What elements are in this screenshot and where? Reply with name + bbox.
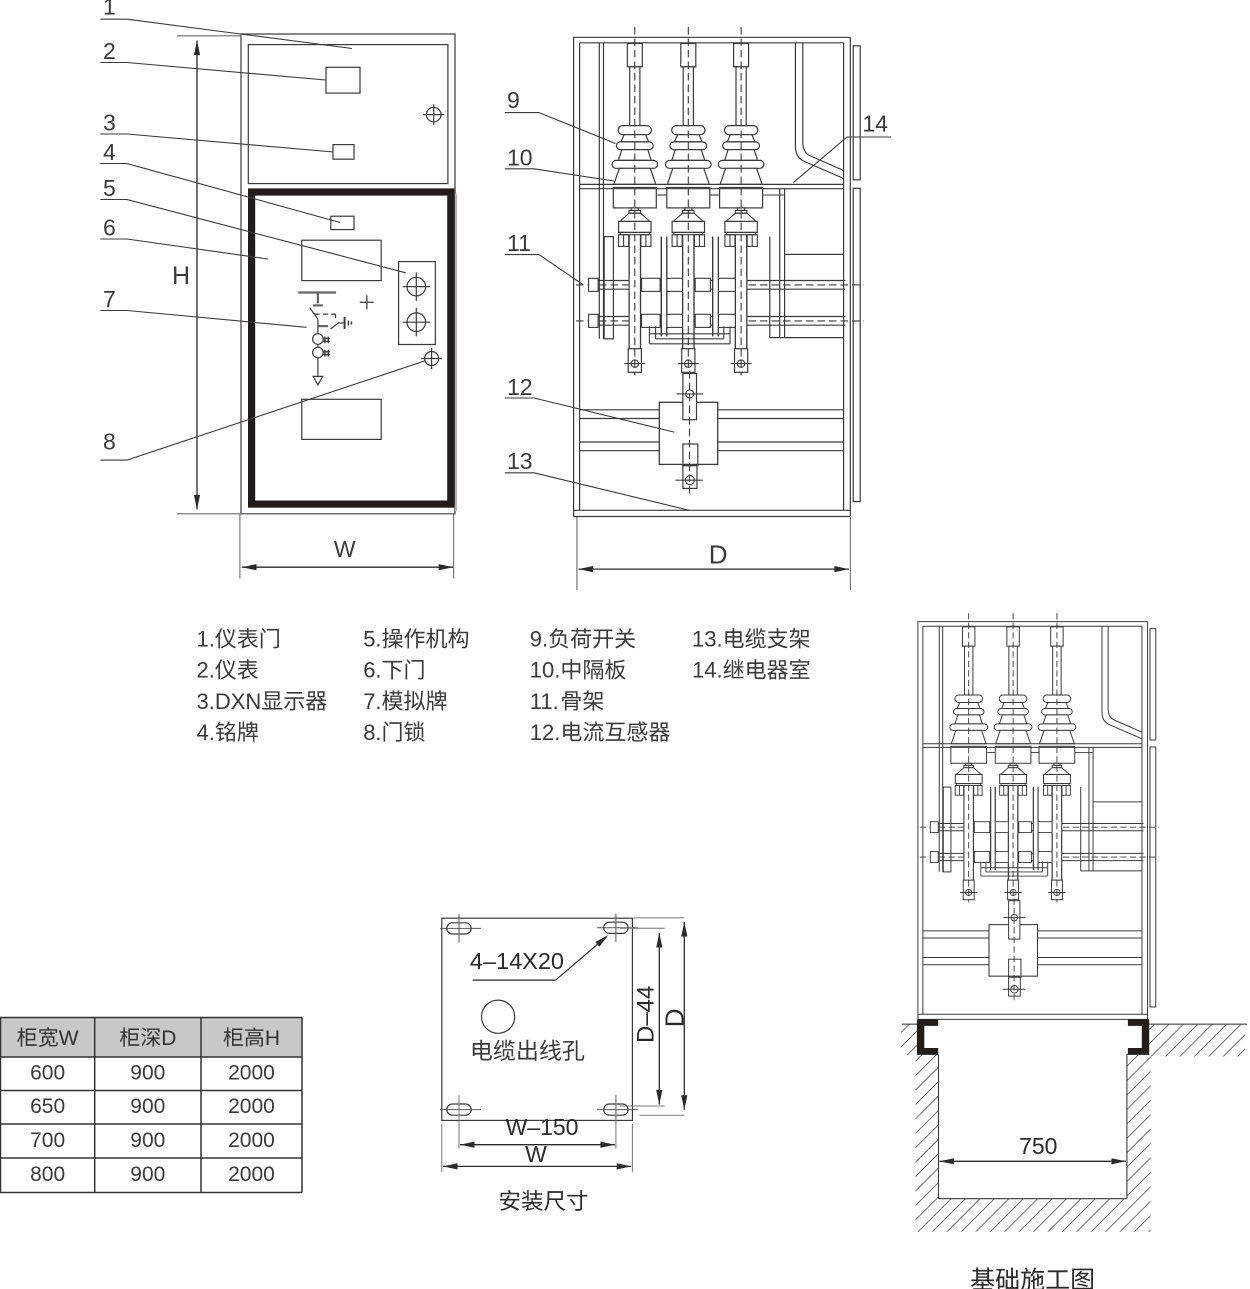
svg-text:600: 600 xyxy=(30,1061,65,1084)
svg-text:750: 750 xyxy=(1019,1133,1057,1159)
svg-text:12.: 12. xyxy=(530,720,561,745)
svg-text:7: 7 xyxy=(103,286,116,312)
svg-text:900: 900 xyxy=(130,1061,165,1084)
svg-text:650: 650 xyxy=(30,1095,65,1118)
svg-text:2000: 2000 xyxy=(228,1061,275,1084)
svg-text:W: W xyxy=(525,1141,547,1167)
svg-text:W: W xyxy=(334,536,356,562)
svg-text:6: 6 xyxy=(103,215,116,241)
svg-text:2000: 2000 xyxy=(228,1129,275,1152)
svg-text:1: 1 xyxy=(103,0,116,20)
svg-text:8: 8 xyxy=(103,429,116,455)
svg-text:900: 900 xyxy=(130,1129,165,1152)
svg-text:3: 3 xyxy=(103,110,116,136)
svg-text:4–14X20: 4–14X20 xyxy=(470,948,564,974)
svg-text:W–150: W–150 xyxy=(506,1114,579,1140)
svg-text:2000: 2000 xyxy=(228,1163,275,1186)
svg-text:800: 800 xyxy=(30,1163,65,1186)
svg-text:7.: 7. xyxy=(363,689,381,714)
svg-text:4.: 4. xyxy=(197,720,215,745)
svg-text:14: 14 xyxy=(862,111,888,137)
svg-text:5: 5 xyxy=(103,175,116,201)
svg-text:9.: 9. xyxy=(530,627,548,652)
svg-text:D: D xyxy=(161,1027,176,1050)
svg-text:6.: 6. xyxy=(363,658,381,683)
svg-text:14.: 14. xyxy=(692,658,723,683)
svg-text:W: W xyxy=(59,1027,79,1050)
svg-text:900: 900 xyxy=(130,1163,165,1186)
svg-text:13: 13 xyxy=(507,448,533,474)
svg-text:700: 700 xyxy=(30,1129,65,1152)
svg-text:8.: 8. xyxy=(363,720,381,745)
svg-text:13.: 13. xyxy=(692,627,723,652)
svg-text:11: 11 xyxy=(507,230,531,256)
svg-text:900: 900 xyxy=(130,1095,165,1118)
svg-text:12: 12 xyxy=(507,374,533,400)
svg-text:H: H xyxy=(172,262,190,290)
svg-text:2000: 2000 xyxy=(228,1095,275,1118)
svg-text:D: D xyxy=(660,1009,690,1028)
svg-text:11.: 11. xyxy=(530,689,559,714)
svg-text:10: 10 xyxy=(507,144,533,170)
svg-text:D–44: D–44 xyxy=(633,986,660,1043)
svg-text:2: 2 xyxy=(103,38,116,64)
svg-text:4: 4 xyxy=(103,139,116,165)
svg-text:1.: 1. xyxy=(197,627,215,652)
svg-text:3.DXN: 3.DXN xyxy=(197,689,262,714)
svg-text:10.: 10. xyxy=(530,658,561,683)
svg-text:9: 9 xyxy=(507,87,520,113)
svg-text:5.: 5. xyxy=(363,627,381,652)
svg-text:2.: 2. xyxy=(197,658,215,683)
svg-text:H: H xyxy=(265,1027,280,1050)
svg-text:D: D xyxy=(709,540,728,570)
